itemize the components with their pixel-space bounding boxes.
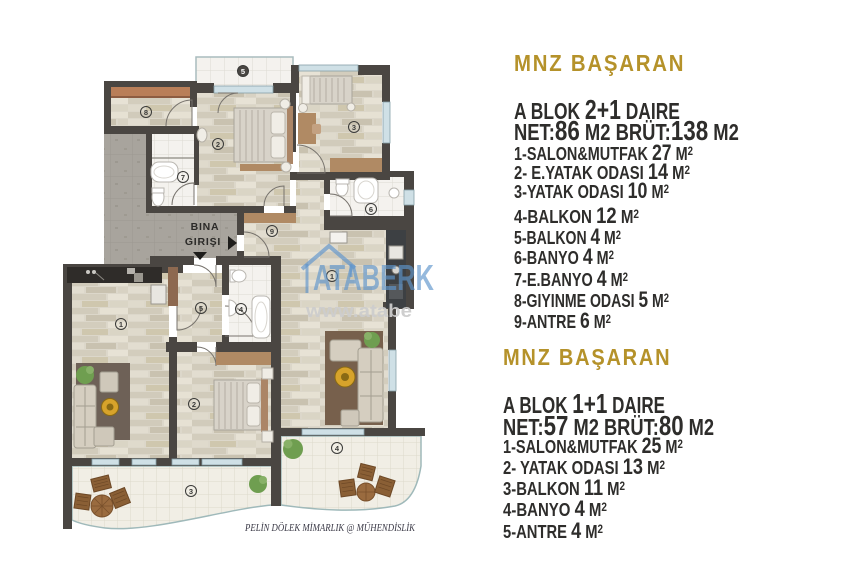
svg-text:BINA: BINA: [191, 221, 220, 233]
svg-text:5: 5: [199, 304, 203, 313]
svg-text:9: 9: [270, 227, 274, 236]
svg-text:2: 2: [216, 140, 220, 149]
svg-text:3: 3: [352, 123, 356, 132]
svg-text:8: 8: [144, 108, 148, 117]
svg-text:ATABERK: ATABERK: [313, 257, 434, 298]
svg-text:3: 3: [189, 487, 193, 496]
svg-text:7: 7: [181, 173, 185, 182]
svg-text:5: 5: [241, 67, 245, 76]
svg-text:2: 2: [192, 400, 196, 409]
svg-text:PELİN DÖLEK MİMARLIK @ MÜHENDİ: PELİN DÖLEK MİMARLIK @ MÜHENDİSLİK: [244, 522, 416, 534]
svg-text:GIRIŞI: GIRIŞI: [185, 236, 221, 248]
svg-text:1: 1: [119, 320, 123, 329]
svg-text:6: 6: [369, 205, 373, 214]
svg-text:www.atabe: www.atabe: [305, 301, 412, 321]
